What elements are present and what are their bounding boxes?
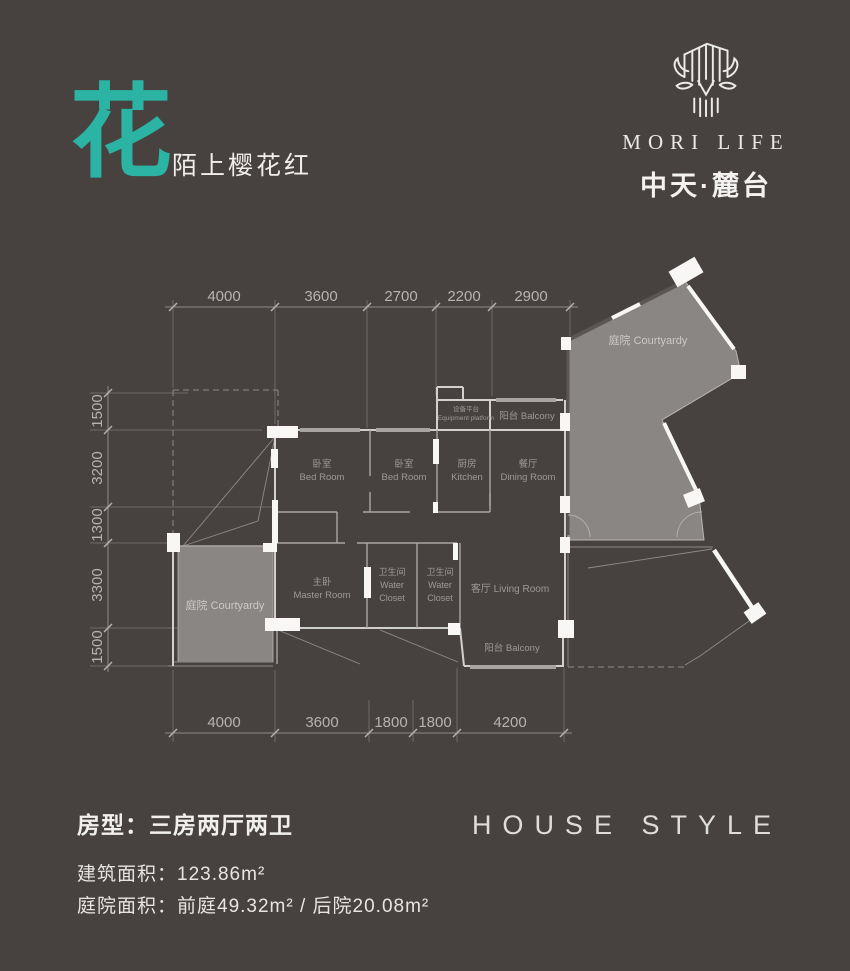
label-wc2-en2: Closet xyxy=(427,593,453,603)
label-wc1-en2: Closet xyxy=(379,593,405,603)
label-wc2-cn: 卫生间 xyxy=(426,566,453,577)
window-bands xyxy=(300,400,556,667)
dim-left-1: 3200 xyxy=(89,451,106,484)
label-wc1-en1: Water xyxy=(380,580,404,590)
extension-lines xyxy=(90,300,570,742)
dim-top-0: 4000 xyxy=(207,288,240,305)
label-balcony-bottom: 阳台 Balcony xyxy=(484,642,540,654)
build-area-label: 建筑面积： xyxy=(77,864,177,885)
label-equipment-cn: 设备平台 xyxy=(453,404,479,413)
label-living: 客厅 Living Room xyxy=(471,582,549,595)
side-wall-window xyxy=(714,550,755,612)
label-equipment-en: Equipment platform xyxy=(438,415,494,422)
dim-left-2: 1300 xyxy=(89,508,106,541)
label-kitchen-cn: 厨房 xyxy=(457,458,476,470)
dim-left-3: 3300 xyxy=(89,568,106,601)
label-master-en: Master Room xyxy=(293,590,350,601)
dim-top-2: 2700 xyxy=(384,288,417,305)
label-kitchen-en: Kitchen xyxy=(451,472,483,483)
dim-top-4: 2900 xyxy=(514,288,547,305)
dim-left-0: 1500 xyxy=(89,394,106,427)
dim-bottom-4: 4200 xyxy=(493,714,526,731)
yard-area-label: 庭院面积： xyxy=(77,896,177,917)
dim-left-4: 1500 xyxy=(89,630,106,663)
dimension-labels: 4000 3600 2700 2200 2900 1500 3200 1300 … xyxy=(89,288,548,731)
yard-area-line: 庭院面积：前庭49.32m² / 后院20.08m² xyxy=(77,891,429,918)
label-wc2-en1: Water xyxy=(428,580,452,590)
dim-bottom-2: 1800 xyxy=(374,714,407,731)
build-area-line: 建筑面积：123.86m² xyxy=(77,859,265,886)
label-dining-cn: 餐厅 xyxy=(518,458,538,470)
label-balcony-top: 阳台 Balcony xyxy=(499,410,555,422)
label-master-cn: 主卧 xyxy=(312,576,332,588)
label-bedroom2-cn: 卧室 xyxy=(394,458,413,470)
label-bedroom1-en: Bed Room xyxy=(300,472,345,483)
label-bedroom2-en: Bed Room xyxy=(382,472,427,483)
yard-area-value: 前庭49.32m² / 后院20.08m² xyxy=(177,896,429,917)
dim-bottom-3: 1800 xyxy=(418,714,451,731)
dimension-lines xyxy=(108,307,578,733)
label-bedroom1-cn: 卧室 xyxy=(312,458,331,470)
dim-top-1: 3600 xyxy=(304,288,337,305)
label-courtyard-back: 庭院 Courtyardy xyxy=(186,598,265,612)
dim-bottom-0: 4000 xyxy=(207,714,240,731)
house-type-title: 房型：三房两厅两卫 xyxy=(77,806,293,840)
label-wc1-cn: 卫生间 xyxy=(378,566,405,577)
dimension-ticks xyxy=(104,303,574,737)
label-dining-en: Dining Room xyxy=(501,472,556,483)
dim-bottom-1: 3600 xyxy=(305,714,338,731)
house-style-en: HOUSE STYLE xyxy=(472,810,782,841)
build-area-value: 123.86m² xyxy=(177,864,265,885)
label-courtyard-front: 庭院 Courtyardy xyxy=(609,333,688,347)
dim-top-3: 2200 xyxy=(447,288,480,305)
